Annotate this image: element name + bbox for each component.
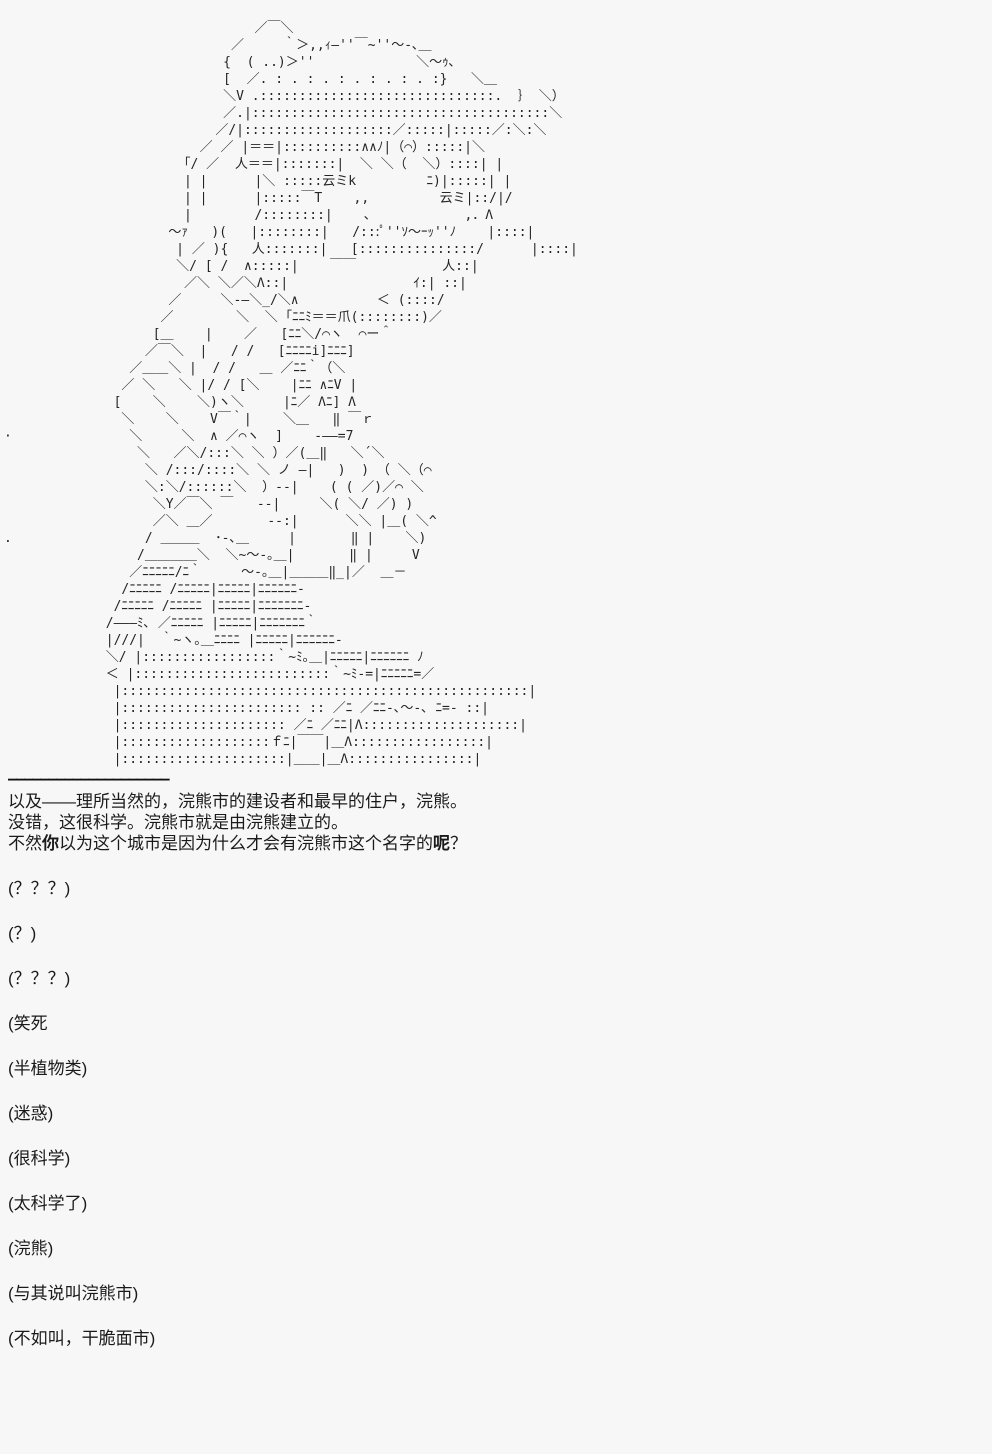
separator-line: ―――――――――――――――――――― (8, 770, 992, 788)
comment-item: (浣熊) (8, 1214, 992, 1259)
narration-line-3-emphasis-2: 呢 (433, 834, 450, 853)
ascii-art-raccoon-girl: ／￣＼ ／ ｀＞,,ｨ―''￣~''～-､＿ { ( ..)＞'' ＼～ｩ､ [… (0, 0, 992, 768)
narration-block: 以及——理所当然的，浣熊市的建设者和最早的住户，浣熊。 没错，这很科学。浣熊市就… (8, 791, 992, 854)
comment-item: (迷惑) (8, 1079, 992, 1124)
narration-line-3-mid: 以为这个城市是因为什么才会有浣熊市这个名字的 (59, 834, 433, 853)
story-page: ／￣＼ ／ ｀＞,,ｨ―''￣~''～-､＿ { ( ..)＞'' ＼～ｩ､ [… (0, 0, 992, 1454)
comment-item: (太科学了) (8, 1169, 992, 1214)
comment-item: (不如叫，干脆面市) (8, 1304, 992, 1349)
comment-item: (与其说叫浣熊市) (8, 1259, 992, 1304)
narration-line-3-post: ？ (450, 834, 467, 853)
comment-item: (？？？) (8, 854, 992, 899)
comment-list: (？？？) (？) (？？？) (笑死 (半植物类) (迷惑) (很科学) (太… (8, 854, 992, 1349)
comment-item: (笑死 (8, 989, 992, 1034)
narration-line-3: 不然你以为这个城市是因为什么才会有浣熊市这个名字的呢？ (8, 833, 992, 854)
comment-item: (很科学) (8, 1124, 992, 1169)
narration-line-3-emphasis-1: 你 (42, 834, 59, 853)
comment-item: (半植物类) (8, 1034, 992, 1079)
comment-item: (？？？) (8, 944, 992, 989)
narration-line-1: 以及——理所当然的，浣熊市的建设者和最早的住户，浣熊。 (8, 791, 992, 812)
narration-line-2: 没错，这很科学。浣熊市就是由浣熊建立的。 (8, 812, 992, 833)
comment-item: (？) (8, 899, 992, 944)
narration-line-3-pre: 不然 (8, 834, 42, 853)
